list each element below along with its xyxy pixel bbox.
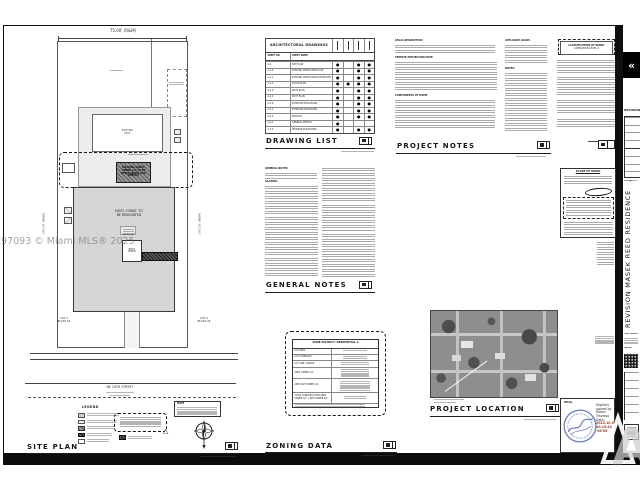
aerial-callout-label: [434, 399, 464, 401]
legend-swatch-rebuilt: [78, 426, 85, 431]
legend-label-4: [87, 433, 112, 437]
site-plan-heading: SITE PLAN: [27, 443, 78, 451]
septic-box-2: [64, 217, 72, 224]
drawing-list-scale-note: [341, 151, 374, 153]
legal-description-heading: LEGAL DESCRIPTION: [395, 40, 422, 43]
right-column-text: [597, 242, 614, 266]
brokerage-logo-watermark: A: [586, 408, 640, 470]
north-arrow-compass: [192, 419, 216, 449]
road-edge-line: [25, 383, 236, 384]
col-header-sheet-no: SHEET NO: [266, 53, 291, 60]
dimension-right: 147.50' (R&M): [198, 204, 201, 244]
titleblock-revision-header: REVISION: [624, 109, 640, 112]
legend-swatch-demolished: [78, 420, 85, 425]
titleblock-small-text: [624, 338, 638, 344]
right-column-detail-ref: [598, 140, 615, 149]
legend-label-2: [87, 420, 117, 424]
drawing-list-underline: [265, 148, 375, 149]
svg-text:A: A: [612, 418, 640, 470]
project-notes-text: [505, 45, 547, 65]
components-heading: COMPONENTS OF HOME: [395, 95, 427, 98]
scope-text: [564, 222, 613, 235]
project-notes-text: [395, 100, 495, 128]
zoning-scale-note: [362, 455, 395, 457]
zoning-table: ZONE DISTRICT: RESIDENTIAL-2 LOT AREA LO…: [292, 339, 379, 408]
drawing-list-heading: DRAWING LIST: [266, 137, 338, 145]
titleblock-project-title: REVISION MASEK REED RESIDENCE: [624, 188, 640, 330]
project-notes-text: [395, 62, 497, 92]
project-notes-heading: PROJECT NOTES: [397, 142, 475, 150]
classification-line2: ALTERATION LEVEL 2: [574, 48, 599, 51]
project-location-scale-note: [524, 419, 556, 421]
legend-label-3: [87, 426, 115, 430]
general-notes-text: [322, 234, 375, 278]
lot-label-right: LOT 4 BLOCK 24: [192, 318, 216, 324]
zoning-row: TOTAL CONSTRUCTION AREA UNDER A/C + NOT …: [293, 392, 378, 403]
project-location-detail-ref: [546, 404, 559, 412]
notes-heading: NOTES:: [505, 68, 515, 71]
area-highlight-box: [120, 226, 136, 235]
general-notes-text: [322, 168, 375, 202]
legend-highlight-dashed-box: [114, 413, 167, 432]
lot-label-left: LOT 2 BLOCK 24: [52, 318, 76, 324]
zoning-data-heading: ZONING DATA: [266, 442, 333, 450]
project-notes-text: [395, 45, 495, 54]
scope-text: [564, 176, 612, 185]
septic-box-1: [64, 207, 72, 214]
existing-pool: EXISTING POOL: [92, 114, 163, 152]
dot-col-header-2: [343, 39, 354, 52]
legend-highlight-text: [120, 417, 161, 428]
right-column-text: [557, 77, 615, 96]
general-notes-intro: GENERAL NOTES:: [265, 168, 288, 171]
detail-marker-tail: [588, 141, 598, 142]
site-note-title: NOTE: [177, 403, 220, 406]
dot-col-header-3: [353, 39, 364, 52]
zoning-table-header: ZONE DISTRICT: RESIDENTIAL-2: [293, 340, 378, 349]
dot-col-header-4: [364, 39, 375, 52]
scope-dashed-paragraph: [563, 197, 614, 219]
chevron-left-icon: «: [628, 59, 635, 72]
dimension-top: 75.00' (R&M): [92, 29, 154, 33]
site-note-text: [177, 407, 217, 415]
right-column-text: [557, 60, 615, 73]
legend-swatch-renovated: [78, 413, 85, 418]
scope-oval-highlight: [585, 187, 612, 197]
titleblock-project-label: PROJECT:: [624, 180, 640, 183]
street-centerline: [28, 397, 236, 398]
drawing-list-table-title: ARCHITECTURAL DRAWINGS: [266, 39, 332, 52]
dimension-line-top: [58, 38, 187, 39]
general-notes-text: [265, 258, 318, 278]
dot-col-header-1: [332, 39, 343, 52]
new-construction-strip: [142, 252, 178, 261]
lot-right-line2: BLOCK 24: [198, 321, 211, 324]
scope-of-work-box: SCOPE OF WORK: [560, 168, 616, 238]
zoning-row: LOT SIZE / GRADE: [293, 360, 378, 367]
general-notes-underline: [265, 292, 375, 293]
appliance-heading: APPLIANCE LOADS: [505, 40, 530, 43]
demolish-rebuild-box: EXISTING CONST. UNDER A/C TO BE DEMOLISH…: [116, 162, 151, 183]
aerial-leader-line: [445, 361, 488, 392]
general-notes-text: [265, 173, 317, 179]
project-notes-text: [505, 73, 547, 131]
legend-extra-swatch: [119, 435, 126, 440]
aerial-photo: [430, 310, 558, 398]
scope-heading: SCOPE OF WORK: [561, 171, 615, 174]
sidewalk-line-1: [30, 353, 238, 354]
project-location-heading: PROJECT LOCATION: [430, 405, 525, 413]
zoning-data-underline: [265, 452, 397, 453]
right-column-text: [557, 119, 615, 128]
termite-note-heading: TERMITE PROTECTION NOTE: [395, 57, 433, 60]
lot-left-line2: BLOCK 24: [58, 321, 71, 324]
zoning-data-detail-ref: [383, 441, 396, 449]
zoning-row: [293, 403, 378, 407]
renovate-line2: BE RENOVATED: [117, 214, 142, 218]
porch-line2: PORCH: [128, 251, 136, 253]
small-structure-box: [62, 163, 75, 173]
site-plan-underline: [27, 453, 238, 454]
titleblock-divider-bar: [615, 25, 623, 454]
site-plan-scale-note: [199, 456, 236, 458]
legend-swatch-new: [78, 433, 85, 438]
legend-extra-label: [128, 436, 152, 439]
bottom-black-bar: [3, 453, 640, 465]
warning-triangle-icon: △: [163, 428, 168, 435]
plan-small-note: [110, 70, 123, 72]
project-notes-scale-note: [516, 156, 546, 158]
street-subnote-1: [106, 392, 134, 394]
general-notes-text: [265, 186, 318, 214]
neighbor-label: [169, 82, 184, 86]
site-note-box: NOTE: [174, 401, 221, 417]
general-notes-sub: GLAZING:: [265, 181, 278, 184]
pool-label-line2: POOL: [124, 133, 131, 136]
right-column-small-note: [595, 336, 614, 344]
street-name: NE 18TH STREET: [92, 386, 148, 390]
legend-label-5: [87, 439, 109, 443]
area-highlight-text: [123, 229, 134, 235]
drawing-list-table: ARCHITECTURAL DRAWINGS SHEET NO SHEET NA…: [265, 38, 375, 134]
right-column-text: [557, 100, 615, 115]
col-header-sheet-name: SHEET NAME: [291, 53, 333, 60]
drawing-list-detail-ref: [359, 137, 372, 145]
renovate-label: EXIST. CONST. TO BE RENOVATED: [99, 210, 159, 217]
qr-code: [624, 354, 638, 368]
project-notes-detail-ref: [537, 141, 550, 149]
plan-sheet-page: 297093 © Miami MLS® 2025 75.00' (R&M) EX…: [0, 0, 640, 480]
general-notes-text: [265, 217, 318, 255]
titleblock-revision-table: [624, 116, 640, 178]
previous-photo-button[interactable]: «: [623, 52, 640, 78]
legend-title: LEGEND: [82, 406, 99, 410]
titleblock-copyright: COPYRIGHT: [624, 333, 640, 335]
zoning-row: AREA NOT UNDER A/C: [293, 378, 378, 391]
table-row: A-5.0INTERIOR ELEVATIONS●●●: [266, 126, 374, 133]
general-notes-text: [322, 205, 375, 231]
utility-box-1: [174, 129, 181, 135]
general-notes-heading: GENERAL NOTES: [266, 281, 347, 289]
mls-watermark: 297093 © Miami MLS® 2025: [0, 236, 135, 247]
utility-box-2: [174, 137, 181, 143]
site-plan-detail-ref: [225, 442, 238, 450]
aerial-callout-label: [434, 402, 456, 404]
walkway: [124, 312, 140, 348]
titleblock-seal-label: SEAL: [624, 347, 640, 350]
general-notes-detail-ref: [359, 281, 372, 289]
project-notes-underline: [396, 153, 551, 154]
legend-swatch-remain: [78, 439, 85, 444]
sidewalk-line-2: [30, 359, 238, 360]
pool-deck-note: [128, 154, 148, 156]
zoning-row: AREA UNDER A/C: [293, 367, 378, 378]
classification-box: CLASSIFICATION OF WORK: ALTERATION LEVEL…: [558, 39, 615, 55]
project-location-underline: [430, 416, 560, 417]
demo-line-4: REBUILT: [128, 175, 139, 178]
